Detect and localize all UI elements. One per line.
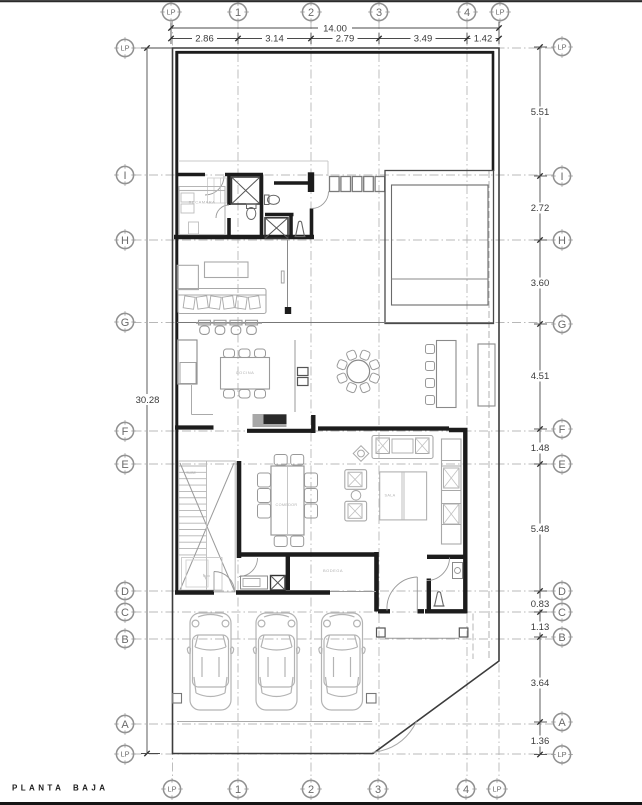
- svg-text:2.72: 2.72: [531, 203, 550, 214]
- svg-text:5.51: 5.51: [531, 107, 550, 118]
- svg-text:BAJA: BAJA: [73, 784, 108, 793]
- svg-text:LP: LP: [120, 44, 129, 53]
- svg-text:C: C: [558, 607, 566, 619]
- svg-text:2: 2: [308, 7, 314, 19]
- svg-text:30.28: 30.28: [136, 395, 160, 406]
- svg-text:SUBE: SUBE: [186, 471, 196, 475]
- svg-text:4.51: 4.51: [531, 371, 550, 382]
- svg-text:LP: LP: [492, 785, 501, 794]
- svg-text:LP: LP: [557, 750, 566, 759]
- svg-text:F: F: [122, 426, 129, 438]
- svg-text:D: D: [558, 586, 566, 598]
- svg-text:G: G: [121, 317, 130, 329]
- svg-text:LP: LP: [557, 43, 566, 52]
- svg-text:G: G: [558, 319, 567, 331]
- svg-text:H: H: [558, 235, 566, 247]
- svg-text:LP: LP: [167, 785, 176, 794]
- svg-text:1.36: 1.36: [531, 736, 550, 747]
- svg-text:COCINA: COCINA: [236, 370, 255, 375]
- svg-text:PLANTA: PLANTA: [12, 784, 64, 793]
- svg-text:4: 4: [464, 7, 470, 19]
- svg-text:3.14: 3.14: [265, 34, 284, 45]
- svg-text:A: A: [121, 719, 129, 731]
- svg-text:1.13: 1.13: [531, 622, 550, 633]
- svg-text:A: A: [558, 717, 566, 729]
- svg-text:2.86: 2.86: [195, 34, 214, 45]
- svg-text:B: B: [121, 634, 128, 646]
- svg-text:E: E: [558, 459, 565, 471]
- svg-text:1: 1: [235, 7, 241, 19]
- svg-text:3.49: 3.49: [414, 34, 433, 45]
- svg-text:B: B: [558, 632, 565, 644]
- svg-text:COMEDOR: COMEDOR: [276, 503, 298, 507]
- svg-text:3.60: 3.60: [531, 278, 550, 289]
- svg-text:C: C: [121, 607, 129, 619]
- svg-text:1.42: 1.42: [474, 34, 493, 45]
- svg-text:I: I: [123, 170, 126, 182]
- svg-text:BODEGA: BODEGA: [323, 568, 343, 573]
- svg-text:LP: LP: [166, 8, 175, 17]
- svg-text:2.79: 2.79: [336, 34, 355, 45]
- svg-text:I: I: [560, 171, 563, 183]
- svg-text:3.64: 3.64: [531, 678, 550, 689]
- svg-text:E: E: [121, 459, 128, 471]
- svg-text:5.48: 5.48: [531, 524, 550, 535]
- svg-text:H: H: [121, 235, 129, 247]
- svg-text:1: 1: [235, 784, 241, 796]
- svg-text:F: F: [559, 424, 566, 436]
- svg-text:4: 4: [463, 784, 469, 796]
- svg-text:SALA: SALA: [385, 494, 396, 498]
- svg-text:D: D: [121, 586, 129, 598]
- svg-text:0.83: 0.83: [531, 599, 550, 610]
- svg-text:LP: LP: [120, 750, 129, 759]
- svg-text:3: 3: [376, 7, 382, 19]
- svg-text:LP: LP: [495, 8, 504, 17]
- svg-text:RECAMARA: RECAMARA: [189, 200, 216, 205]
- svg-text:1.48: 1.48: [531, 443, 550, 454]
- svg-text:2: 2: [308, 784, 314, 796]
- svg-text:3: 3: [375, 784, 381, 796]
